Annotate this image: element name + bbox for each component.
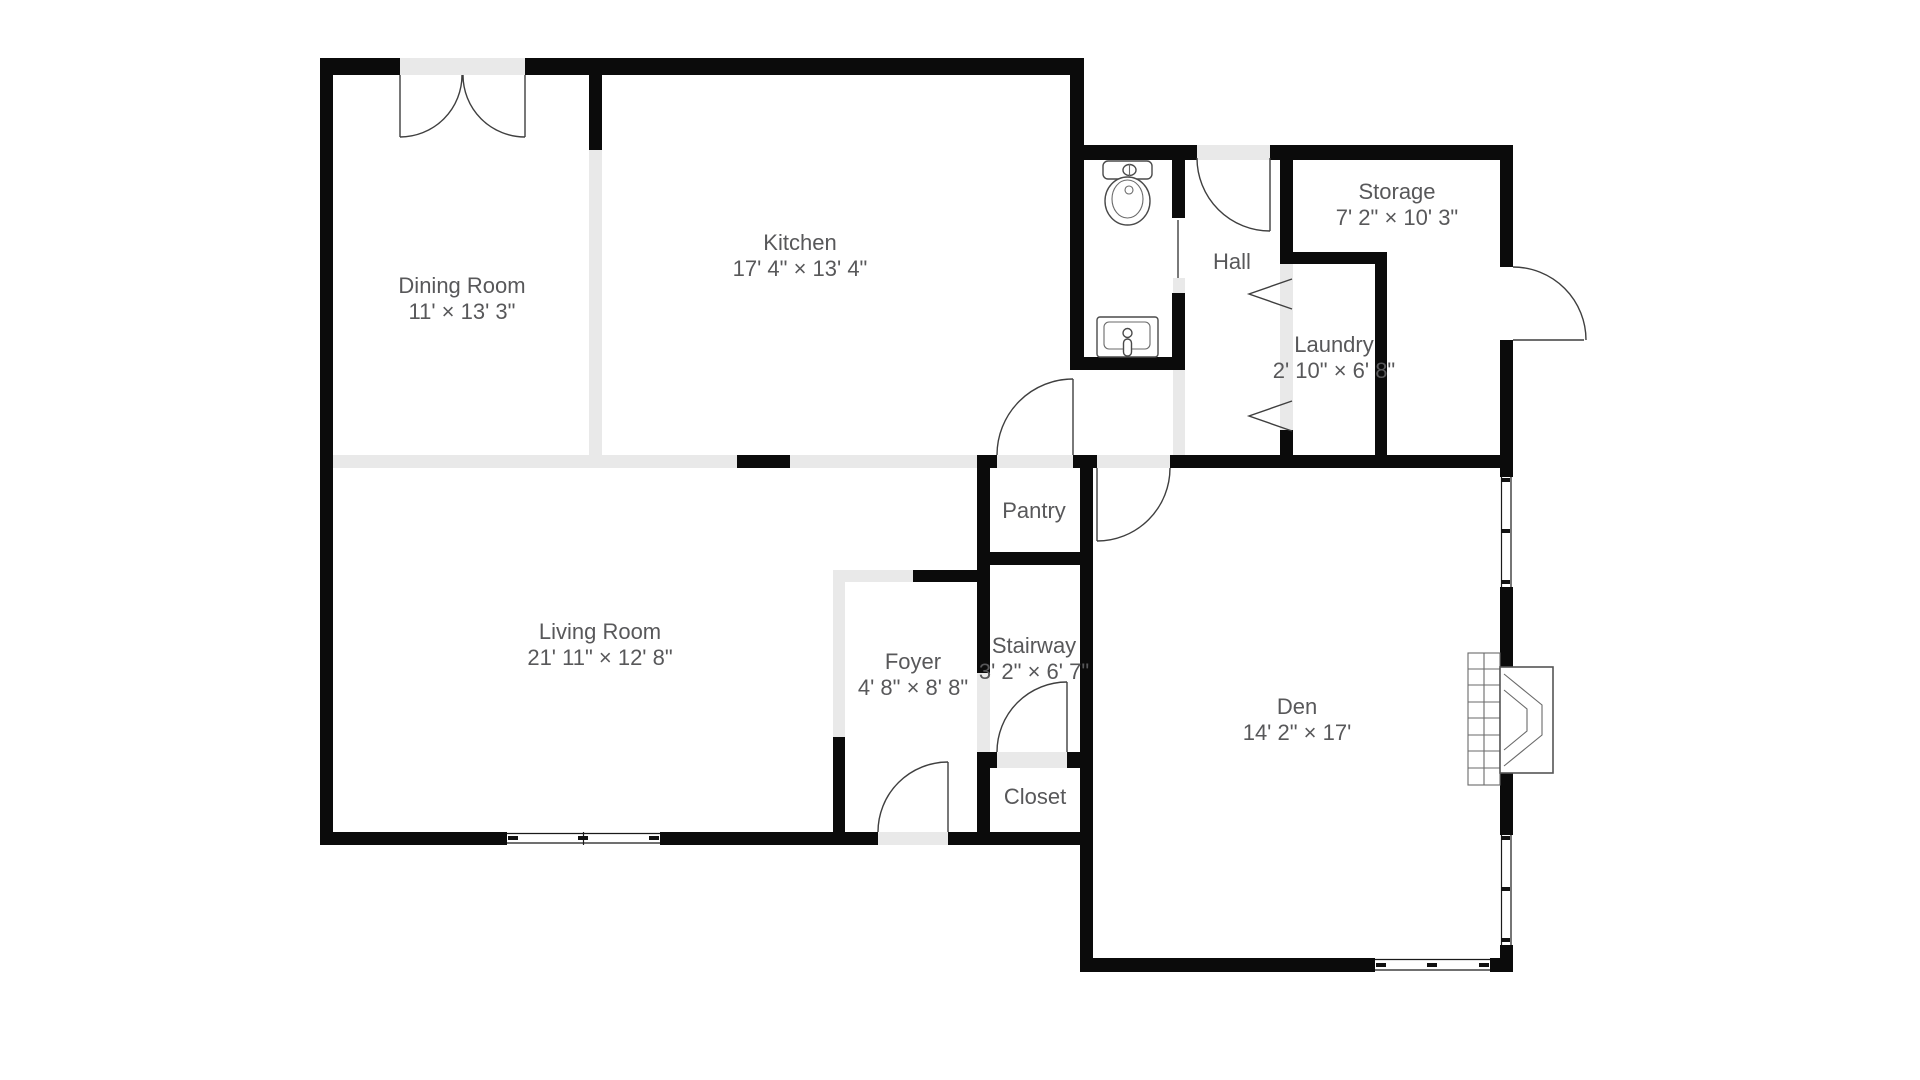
double-door-dining bbox=[400, 75, 525, 137]
window-living-room bbox=[507, 832, 660, 845]
window-den-right-upper bbox=[1500, 477, 1513, 587]
room-name: Living Room bbox=[527, 619, 672, 645]
room-name: Den bbox=[1243, 694, 1352, 720]
door-storage-exterior bbox=[1513, 267, 1586, 340]
room-name: Stairway bbox=[979, 633, 1089, 659]
room-name: Closet bbox=[1004, 784, 1066, 810]
room-label-foyer: Foyer 4' 8" × 8' 8" bbox=[858, 649, 968, 701]
floor-plan-drawing bbox=[0, 0, 1920, 1080]
room-name: Foyer bbox=[858, 649, 968, 675]
room-dimensions: 4' 8" × 8' 8" bbox=[858, 675, 968, 701]
room-name: Dining Room bbox=[398, 273, 525, 299]
door-front-entry bbox=[878, 762, 948, 832]
room-label-den: Den 14' 2" × 17' bbox=[1243, 694, 1352, 746]
room-name: Pantry bbox=[1002, 498, 1066, 524]
fireplace-icon bbox=[1468, 653, 1553, 785]
door-hall-exterior bbox=[1197, 158, 1270, 231]
floor-plan-canvas: Dining Room 11' × 13' 3" Kitchen 17' 4" … bbox=[0, 0, 1920, 1080]
door-pantry bbox=[997, 379, 1073, 455]
room-dimensions: 2' 10" × 6' 8" bbox=[1273, 358, 1396, 384]
room-label-stairway: Stairway 3' 2" × 6' 7" bbox=[979, 633, 1089, 685]
room-name: Laundry bbox=[1273, 332, 1396, 358]
room-label-kitchen: Kitchen 17' 4" × 13' 4" bbox=[733, 230, 868, 282]
room-label-dining-room: Dining Room 11' × 13' 3" bbox=[398, 273, 525, 325]
room-name: Storage bbox=[1336, 179, 1459, 205]
room-label-hall: Hall bbox=[1213, 249, 1251, 275]
room-label-pantry: Pantry bbox=[1002, 498, 1066, 524]
door-den-entry bbox=[1097, 468, 1170, 541]
room-label-laundry: Laundry 2' 10" × 6' 8" bbox=[1273, 332, 1396, 384]
room-name: Kitchen bbox=[733, 230, 868, 256]
room-dimensions: 11' × 13' 3" bbox=[398, 299, 525, 325]
room-dimensions: 14' 2" × 17' bbox=[1243, 720, 1352, 746]
toilet-icon bbox=[1103, 161, 1152, 225]
door-closet bbox=[997, 682, 1067, 752]
sink-icon bbox=[1097, 317, 1158, 357]
room-dimensions: 7' 2" × 10' 3" bbox=[1336, 205, 1459, 231]
room-name: Hall bbox=[1213, 249, 1251, 275]
room-dimensions: 17' 4" × 13' 4" bbox=[733, 256, 868, 282]
room-dimensions: 21' 11" × 12' 8" bbox=[527, 645, 672, 671]
window-den-right-lower bbox=[1500, 835, 1513, 945]
window-den-bottom bbox=[1375, 958, 1490, 972]
room-label-storage: Storage 7' 2" × 10' 3" bbox=[1336, 179, 1459, 231]
room-label-living-room: Living Room 21' 11" × 12' 8" bbox=[527, 619, 672, 671]
room-dimensions: 3' 2" × 6' 7" bbox=[979, 659, 1089, 685]
room-label-closet: Closet bbox=[1004, 784, 1066, 810]
